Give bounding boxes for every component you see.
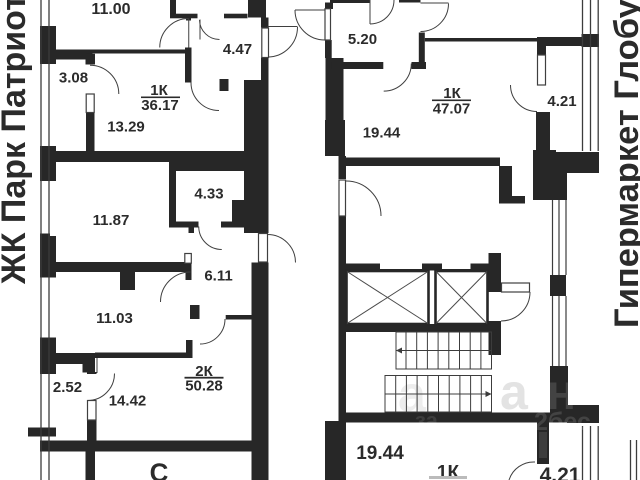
svg-text:2.52: 2.52	[53, 379, 82, 396]
svg-text:1К: 1К	[443, 85, 461, 102]
svg-text:С: С	[150, 458, 169, 480]
svg-text:4.21: 4.21	[540, 464, 581, 480]
svg-text:за: за	[415, 408, 439, 433]
svg-text:13.29: 13.29	[107, 119, 145, 136]
svg-text:11.03: 11.03	[96, 310, 133, 327]
svg-text:19.44: 19.44	[356, 443, 404, 464]
svg-text:19.44: 19.44	[363, 125, 401, 142]
svg-text:ЖК Парк Патриотов: ЖК Парк Патриотов	[0, 0, 33, 285]
svg-text:36.17: 36.17	[141, 97, 179, 114]
svg-text:11.87: 11.87	[93, 212, 130, 229]
svg-text:5.20: 5.20	[348, 31, 377, 48]
svg-text:6.11: 6.11	[204, 268, 232, 285]
svg-text:Гипермаркет Глобус: Гипермаркет Глобус	[608, 0, 640, 328]
svg-text:2бес: 2бес	[534, 408, 591, 436]
svg-text:14.42: 14.42	[109, 393, 147, 410]
svg-text:4.47: 4.47	[223, 41, 252, 58]
svg-text:11.00: 11.00	[91, 1, 130, 18]
svg-text:а: а	[500, 364, 529, 420]
svg-text:3.08: 3.08	[59, 70, 88, 87]
svg-text:47.07: 47.07	[433, 101, 471, 118]
svg-text:4.21: 4.21	[547, 93, 576, 110]
svg-text:4.33: 4.33	[194, 186, 223, 203]
svg-text:50.28: 50.28	[185, 378, 223, 395]
